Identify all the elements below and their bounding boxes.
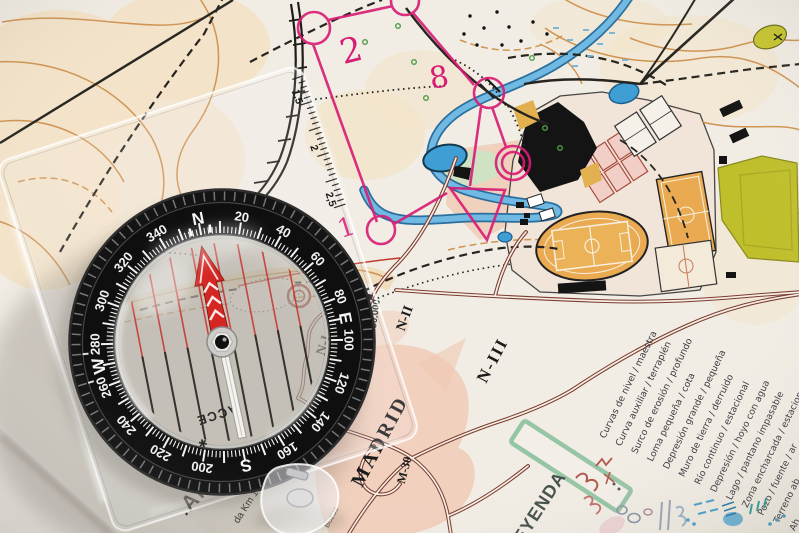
photo-vignette — [0, 0, 799, 533]
scene-svg: MADRID M-30 M-40 N-I N-II N-III 1:50.000… — [0, 0, 799, 533]
photo-of-compass-on-map: MADRID M-30 M-40 N-I N-II N-III 1:50.000… — [0, 0, 799, 533]
